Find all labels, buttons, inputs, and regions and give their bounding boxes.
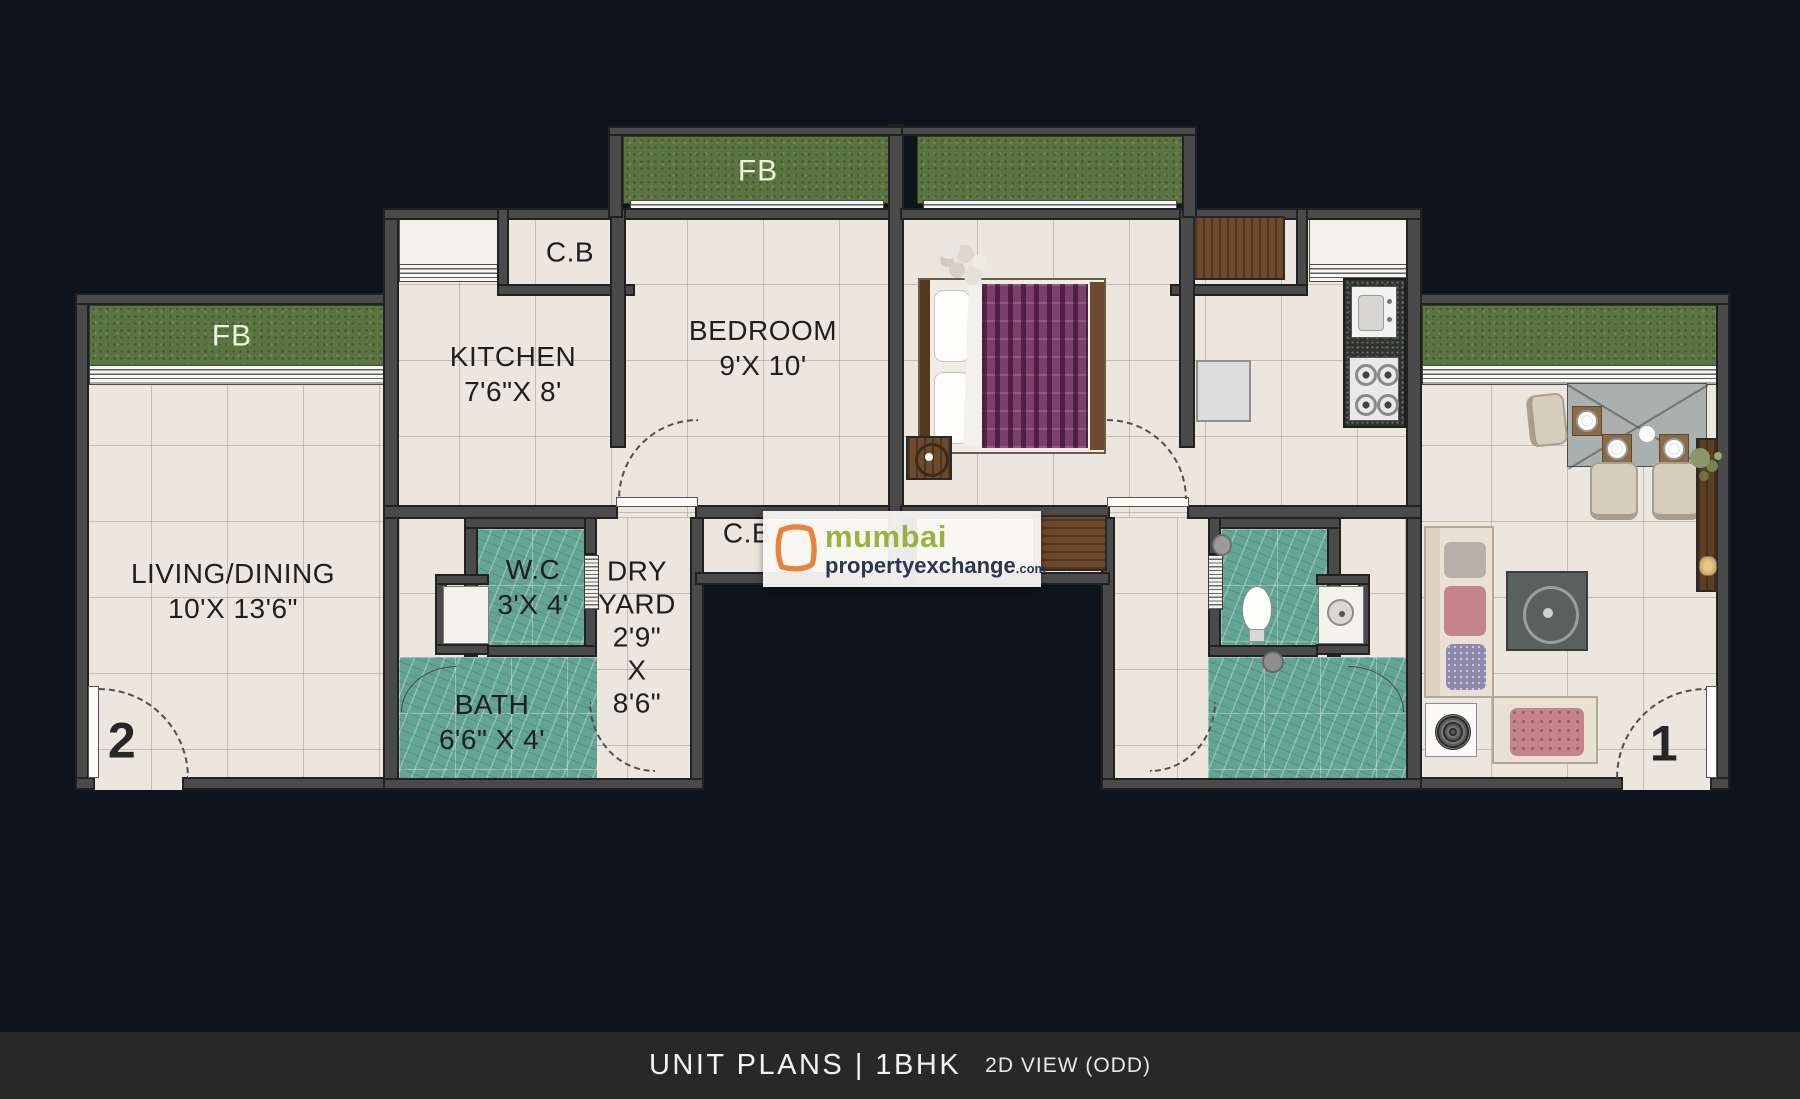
flower-bed-label: FB <box>738 154 778 189</box>
kitchen-sink <box>1351 286 1397 338</box>
bath-label: BATH 6'6" X 4' <box>439 687 545 757</box>
wall <box>1296 208 1308 296</box>
bath-tap-icon <box>1262 651 1284 673</box>
wall <box>383 208 905 220</box>
page-title: UNIT PLANS | 1BHK <box>649 1049 961 1082</box>
sink-faucet-icon <box>1387 299 1392 304</box>
wall <box>383 778 704 790</box>
wc-label: W.C 3'X 4' <box>497 552 568 622</box>
cupboard-label: C.B <box>546 235 594 270</box>
pouf-mandala-icon <box>1435 714 1471 750</box>
basin-drain-icon <box>1339 611 1345 617</box>
bedside-stool <box>906 436 952 480</box>
sink-basin-icon <box>1358 295 1384 331</box>
stool-ring-icon <box>915 443 949 477</box>
dry-yard-label: DRY YARD 2'9" X 8'6" <box>598 555 676 720</box>
title-bar: UNIT PLANS | 1BHK 2D VIEW (ODD) <box>0 1032 1800 1099</box>
gas-stove <box>1349 357 1399 421</box>
bedroom-door-leaf <box>1107 497 1189 507</box>
burner-icon <box>1355 394 1377 416</box>
seat-cushion <box>1510 708 1584 756</box>
wall <box>487 645 597 657</box>
wall <box>900 208 1422 220</box>
sofa-armrest <box>1426 528 1440 696</box>
toilet-base <box>1249 629 1265 642</box>
entry-door-leaf <box>1706 686 1717 778</box>
pouf <box>1425 703 1477 757</box>
kitchen-cupboard <box>1193 216 1285 280</box>
toilet <box>1242 586 1272 632</box>
burner-icon <box>1377 394 1399 416</box>
wash-basin-icon <box>1327 599 1354 626</box>
sofa-cushion <box>1444 542 1486 578</box>
bedroom-label: BEDROOM 9'X 10' <box>689 313 837 383</box>
window <box>1422 365 1718 385</box>
bedroom-door-leaf <box>616 497 698 507</box>
sofa-cushion <box>1446 644 1486 690</box>
wall <box>497 208 509 296</box>
wall <box>464 517 597 529</box>
dining-chair <box>1652 462 1700 520</box>
wall <box>610 208 626 448</box>
basin-niche <box>443 586 489 644</box>
sofa <box>1424 526 1494 698</box>
floor-plan-canvas: FB FB C.B KITCHEN 7'6"X 8' BEDROOM 9'X 1… <box>0 0 1800 1099</box>
entry-door-leaf <box>88 686 99 778</box>
wall <box>690 517 704 790</box>
wall <box>1182 126 1197 218</box>
flower-bed-label: FB <box>212 319 252 354</box>
wall <box>901 126 1197 136</box>
wall <box>75 293 89 790</box>
flower-bed <box>917 136 1184 204</box>
bed-footboard <box>1090 282 1104 450</box>
bathroom-floor <box>1221 529 1329 645</box>
burner-icon <box>1355 364 1377 386</box>
watermark-logo: mumbai propertyexchange.com <box>763 511 1041 587</box>
bed <box>918 278 1106 454</box>
wall <box>608 126 904 136</box>
stool-dot-icon <box>925 453 933 461</box>
wall <box>1208 517 1341 529</box>
logo-brand-text: mumbai <box>825 521 1046 552</box>
bed-quilt <box>982 284 1088 448</box>
bowl-icon <box>1638 425 1656 443</box>
sofa-cushion <box>1444 586 1486 636</box>
wall <box>1316 574 1370 585</box>
wall <box>608 126 623 218</box>
logo-tld-text: .com <box>1016 561 1046 576</box>
wall <box>584 517 597 555</box>
logo-domain-text: propertyexchange.com <box>825 555 1046 577</box>
vent-louver <box>584 555 599 610</box>
bed-headboard <box>920 280 930 452</box>
unit-number-2: 2 <box>108 724 136 759</box>
coffee-table <box>1506 571 1588 651</box>
geyser-tap-icon <box>1212 534 1232 556</box>
sofa-seat <box>1492 696 1598 764</box>
bed-pillow <box>934 290 970 362</box>
flower-decor-icon <box>938 237 960 259</box>
plant-icon <box>1690 448 1710 468</box>
wall <box>1415 293 1730 305</box>
orange-open-square-icon <box>769 516 818 581</box>
wall <box>1415 777 1623 790</box>
plate-icon <box>1606 438 1628 460</box>
plate-icon <box>1663 438 1685 460</box>
living-dining-label: LIVING/DINING 10'X 13'6" <box>131 556 335 626</box>
wall <box>75 777 95 790</box>
bathroom-floor <box>1208 657 1406 778</box>
wall <box>1101 778 1422 790</box>
dining-chair <box>1590 462 1638 520</box>
wall <box>383 208 399 790</box>
window <box>89 365 385 385</box>
wall <box>435 574 489 585</box>
dining-chair <box>1525 392 1568 448</box>
wall <box>1316 644 1370 655</box>
burner-icon <box>1377 364 1399 386</box>
plate-icon <box>1576 410 1598 432</box>
wall <box>1716 293 1730 790</box>
fridge <box>1196 360 1251 422</box>
vent-louver <box>1208 555 1223 610</box>
wall <box>1710 777 1730 790</box>
kitchen-label: KITCHEN 7'6"X 8' <box>450 339 576 409</box>
flower-bed <box>1422 305 1718 367</box>
sink-faucet-icon <box>1387 317 1392 322</box>
table-dot-icon <box>1543 608 1553 618</box>
wall <box>75 293 390 305</box>
window <box>399 264 498 282</box>
decor-gold-icon <box>1699 556 1717 576</box>
wall <box>435 644 489 655</box>
wall <box>1406 208 1422 790</box>
page-subtitle: 2D VIEW (ODD) <box>985 1054 1151 1078</box>
unit-number-1: 1 <box>1650 727 1678 762</box>
wall <box>182 777 390 790</box>
